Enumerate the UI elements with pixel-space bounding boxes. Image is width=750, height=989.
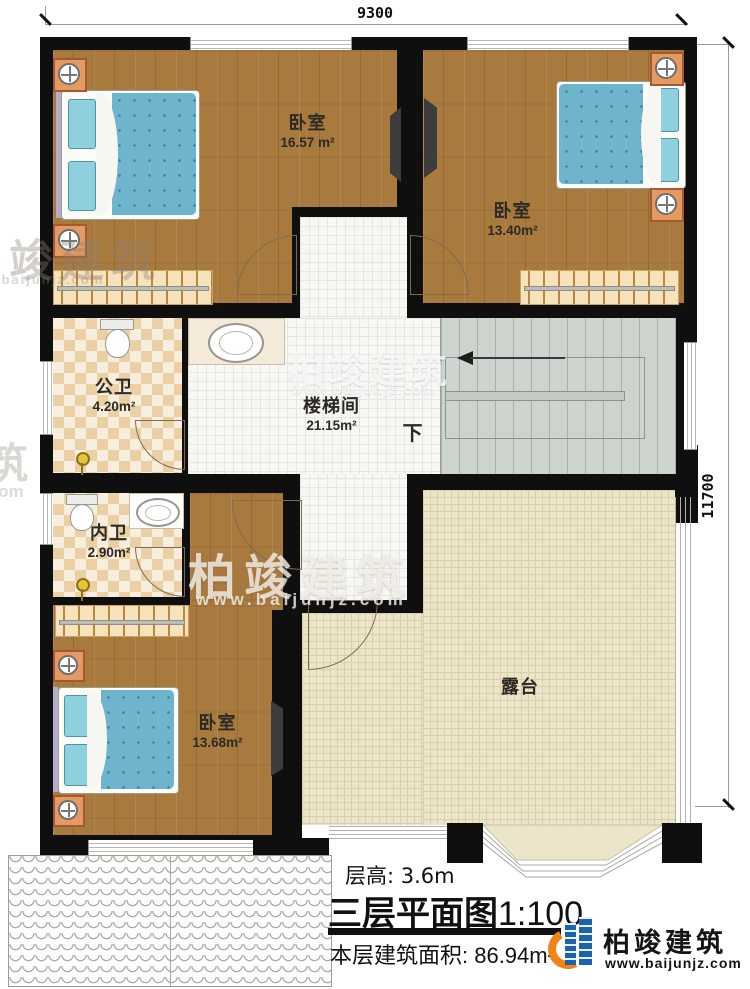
room-area: 21.15m² [264, 418, 399, 435]
lamp-icon [655, 193, 677, 215]
tv-icon [424, 98, 437, 178]
floor-plan-canvas: 9300 11700 [0, 0, 750, 989]
lamp-icon [655, 57, 677, 79]
nightstand [53, 58, 87, 92]
floor-drain-icon [76, 578, 90, 592]
room-label-ensuite-bath: 内卫 2.90m² [50, 522, 168, 561]
right-dimension-extension-top [692, 44, 728, 45]
bed-duvet [112, 93, 196, 215]
room-label-stairwell: 楼梯间 21.15m² [264, 395, 399, 434]
top-dimension-line [45, 24, 688, 25]
room-area: 2.90m² [50, 545, 168, 562]
sink-icon [208, 323, 264, 363]
brand-website: www.baijunjz.com [605, 955, 742, 971]
floor-area-text: 本层建筑面积: 86.94m² [330, 938, 555, 970]
room-area: 13.40m² [445, 223, 580, 240]
toilet-icon [105, 329, 130, 358]
room-name: 楼梯间 [264, 395, 399, 418]
wardrobe [520, 270, 679, 305]
terrace-railing [329, 826, 447, 839]
pillow [68, 99, 96, 149]
nightstand [650, 188, 684, 222]
stairs-direction-line [470, 357, 565, 359]
bed [56, 90, 198, 218]
room-name: 露台 [455, 676, 585, 699]
room-area: 13.68m² [150, 735, 285, 752]
stair-rail-center [445, 391, 625, 401]
nightstand [650, 52, 684, 86]
tv-icon [390, 107, 401, 182]
lamp-icon [58, 800, 78, 820]
logo-building-icon [579, 917, 592, 965]
room-name: 卧室 [240, 112, 375, 135]
nightstand [53, 650, 85, 682]
watermark-url: www.baijunjz.com [0, 272, 104, 287]
window [190, 37, 352, 50]
pillar [662, 823, 702, 863]
terrace-floor [423, 490, 675, 825]
room-label-public-bath: 公卫 4.20m² [55, 376, 173, 415]
logo-building-icon [565, 923, 576, 965]
pillar [447, 823, 483, 863]
room-area: 4.20m² [55, 399, 173, 416]
lamp-icon [58, 655, 78, 675]
top-dimension-value: 9300 [330, 4, 420, 22]
window [467, 37, 629, 50]
room-label-bedroom-tr: 卧室 13.40m² [445, 200, 580, 239]
room-area: 16.57 m² [240, 135, 375, 152]
watermark-url: www.baijunjz.com [292, 382, 436, 397]
pillow [68, 161, 96, 211]
room-name: 卧室 [150, 712, 285, 735]
room-label-bedroom-bl: 卧室 13.68m² [150, 712, 285, 751]
right-dimension-line [728, 44, 729, 808]
nightstand [53, 795, 85, 827]
wardrobe [55, 605, 189, 637]
right-dimension-extension-bottom [695, 806, 728, 807]
roof-tiles [8, 855, 332, 987]
room-label-terrace: 露台 [455, 676, 585, 699]
stairs-down-label: 下 [398, 422, 428, 447]
window [40, 361, 53, 435]
title-underline [328, 928, 561, 935]
bed-duvet [559, 84, 643, 184]
floor-drain-icon [76, 452, 90, 466]
lamp-icon [58, 63, 80, 85]
right-dimension-value: 11700 [699, 466, 721, 526]
watermark-url: www.baijunjz.com [196, 590, 407, 610]
watermark-url: .com [0, 482, 24, 502]
bed [556, 81, 684, 187]
room-label-bedroom-tl: 卧室 16.57 m² [240, 112, 375, 151]
window [88, 840, 257, 855]
room-name: 卧室 [445, 200, 580, 223]
brand-logo: 柏竣建筑 www.baijunjz.com [548, 915, 748, 981]
terrace-railing [675, 497, 692, 825]
room-name: 内卫 [50, 522, 168, 545]
room-name: 公卫 [55, 376, 173, 399]
window [684, 342, 697, 450]
